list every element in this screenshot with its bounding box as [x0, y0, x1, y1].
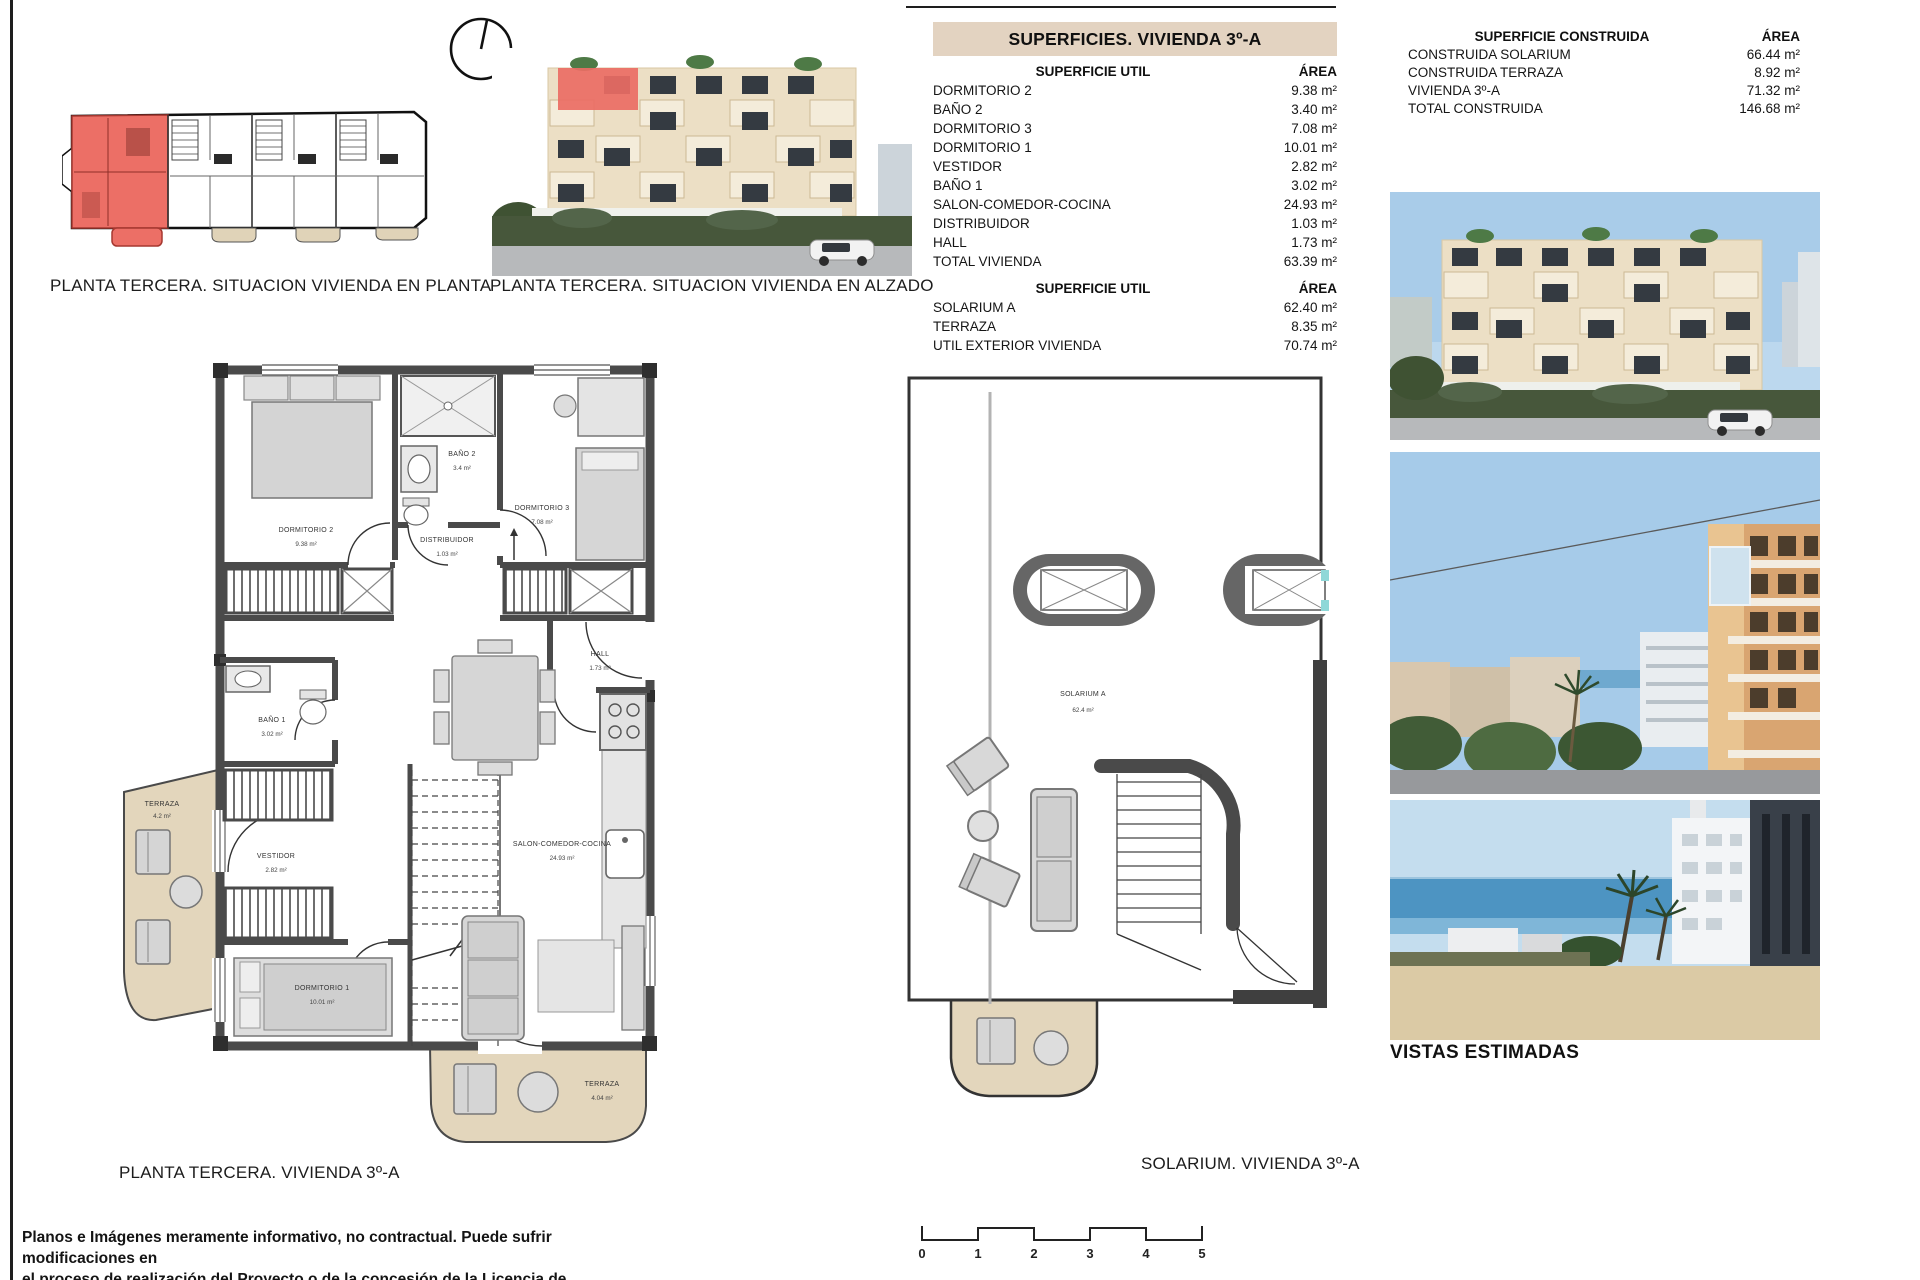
svg-text:BAÑO 1: BAÑO 1 — [258, 715, 285, 724]
table-row: TERRAZA 8.35 m² — [933, 317, 1337, 336]
table-row: CONSTRUIDA TERRAZA 8.92 m² — [1408, 64, 1800, 82]
svg-text:3.02 m²: 3.02 m² — [261, 731, 282, 738]
terrace-bottom: TERRAZA 4.04 m² — [430, 1046, 646, 1142]
table-row: BAÑO 1 3.02 m² — [933, 176, 1337, 195]
table-row: DORMITORIO 1 10.01 m² — [933, 138, 1337, 157]
thick-right-wall — [1313, 660, 1327, 1008]
situation-floor-plan — [62, 96, 442, 260]
highlighted-unit-elevation — [558, 68, 638, 110]
construida-panel: SUPERFICIE CONSTRUIDA ÁREA CONSTRUIDA SO… — [1408, 28, 1800, 118]
skylight-a — [1013, 554, 1155, 626]
svg-text:TERRAZA: TERRAZA — [145, 801, 180, 808]
solarium-plan: SOLARIUM A 62.4 m² — [893, 364, 1340, 1112]
table-row: TOTAL VIVIENDA 63.39 m² — [933, 252, 1337, 271]
table-row: CONSTRUIDA SOLARIUM 66.44 m² — [1408, 46, 1800, 64]
svg-text:3: 3 — [1086, 1246, 1093, 1261]
svg-text:1: 1 — [974, 1246, 981, 1261]
solarium-terrace — [951, 1000, 1097, 1096]
svg-text:DISTRIBUIDOR: DISTRIBUIDOR — [420, 537, 474, 544]
balcony-stubs — [212, 228, 418, 242]
beach-sand — [1390, 966, 1820, 1040]
solarium-walls — [909, 378, 1321, 1000]
page-top-border — [906, 6, 1336, 8]
caption-vistas: VISTAS ESTIMADAS — [1390, 1042, 1579, 1064]
table-row: DORMITORIO 3 7.08 m² — [933, 119, 1337, 138]
disclaimer: Planos e Imágenes meramente informativo,… — [22, 1228, 602, 1280]
svg-text:4: 4 — [1142, 1246, 1150, 1261]
table-row: SALON-COMEDOR-COCINA 24.93 m² — [933, 195, 1337, 214]
construida-header: SUPERFICIE CONSTRUIDA ÁREA — [1408, 28, 1800, 46]
svg-text:SALON-COMEDOR-COCINA: SALON-COMEDOR-COCINA — [513, 841, 611, 848]
svg-text:HALL: HALL — [591, 651, 610, 658]
table-row: BAÑO 2 3.40 m² — [933, 100, 1337, 119]
kitchen — [600, 694, 646, 948]
superficie-exterior-rows: SOLARIUM A 62.40 m² TERRAZA 8.35 m² UTIL… — [933, 298, 1337, 355]
construida-rows: CONSTRUIDA SOLARIUM 66.44 m² CONSTRUIDA … — [1408, 46, 1800, 118]
caption-situacion-alzado: PLANTA TERCERA. SITUACION VIVIENDA EN AL… — [490, 276, 934, 296]
svg-text:1.73 m²: 1.73 m² — [589, 665, 610, 672]
table-row: SOLARIUM A 62.40 m² — [933, 298, 1337, 317]
superficies-panel: SUPERFICIES. VIVIENDA 3º-A SUPERFICIE UT… — [933, 22, 1337, 355]
col-area-3: ÁREA — [1716, 28, 1800, 46]
situation-elevation — [492, 48, 912, 276]
plan-left-notch — [62, 148, 72, 192]
disclaimer-line-2: el proceso de realización del Proyecto o… — [22, 1270, 602, 1280]
svg-text:DORMITORIO 1: DORMITORIO 1 — [295, 985, 350, 992]
scale-bar: 0 1 2 3 4 5 — [912, 1218, 1222, 1270]
superficie-util-header: SUPERFICIE UTIL ÁREA — [933, 62, 1337, 81]
solarium-area: 62.4 m² — [1072, 707, 1093, 714]
photo-building-render — [1390, 192, 1820, 440]
floor-plan: TERRAZA 4.2 m² TERRAZA 4.04 m² — [110, 360, 670, 1160]
sofa — [462, 916, 524, 1040]
col-area: ÁREA — [1253, 62, 1337, 81]
table-row: DORMITORIO 2 9.38 m² — [933, 81, 1337, 100]
solarium-table — [968, 811, 998, 841]
table-row: UTIL EXTERIOR VIVIENDA 70.74 m² — [933, 336, 1337, 355]
svg-text:5: 5 — [1198, 1246, 1205, 1261]
table-row: TOTAL CONSTRUIDA 146.68 m² — [1408, 100, 1800, 118]
col-superficie-util: SUPERFICIE UTIL — [933, 62, 1253, 81]
svg-text:0: 0 — [918, 1246, 925, 1261]
col-area-2: ÁREA — [1253, 279, 1337, 298]
svg-text:BAÑO 2: BAÑO 2 — [448, 449, 475, 458]
svg-text:2: 2 — [1030, 1246, 1037, 1261]
table-row: VESTIDOR 2.82 m² — [933, 157, 1337, 176]
svg-text:10.01 m²: 10.01 m² — [310, 999, 335, 1006]
rug — [538, 940, 614, 1012]
bed-dormitorio1 — [234, 958, 392, 1036]
superficies-title: SUPERFICIES. VIVIENDA 3º-A — [933, 22, 1337, 56]
superficie-util-rows: DORMITORIO 2 9.38 m² BAÑO 2 3.40 m² DORM… — [933, 81, 1337, 271]
svg-text:1.03 m²: 1.03 m² — [436, 551, 457, 558]
solarium-sofa — [1031, 789, 1077, 931]
caption-situacion-planta: PLANTA TERCERA. SITUACION VIVIENDA EN PL… — [50, 276, 491, 296]
bed-dormitorio2 — [244, 376, 380, 498]
col-superficie-construida: SUPERFICIE CONSTRUIDA — [1408, 28, 1716, 46]
road — [1390, 770, 1820, 794]
tv-bench — [622, 926, 644, 1030]
white-building — [1672, 800, 1750, 964]
dark-building — [1750, 800, 1820, 972]
skylight-b — [1223, 554, 1337, 626]
caption-solarium: SOLARIUM. VIVIENDA 3º-A — [1141, 1154, 1360, 1174]
terrace-left: TERRAZA 4.2 m² — [124, 770, 218, 1020]
table-row: HALL 1.73 m² — [933, 233, 1337, 252]
svg-text:24.93 m²: 24.93 m² — [550, 855, 575, 862]
scale-ticks: 0 1 2 3 4 5 — [918, 1246, 1205, 1261]
highlighted-unit — [72, 115, 168, 246]
plan-sheet: PLANTA TERCERA. SITUACION VIVIENDA EN PL… — [0, 0, 1920, 1280]
table-row: DISTRIBUIDOR 1.03 m² — [933, 214, 1337, 233]
superficie-exterior-header: SUPERFICIE UTIL ÁREA — [933, 279, 1337, 298]
orange-building — [1708, 524, 1820, 794]
svg-text:4.2 m²: 4.2 m² — [153, 813, 171, 820]
photo-street-view — [1390, 452, 1820, 794]
solarium-label: SOLARIUM A — [1060, 691, 1106, 698]
svg-text:DORMITORIO 3: DORMITORIO 3 — [515, 505, 570, 512]
dining-set — [434, 640, 555, 775]
thick-bottom-wall — [1233, 990, 1327, 1004]
disclaimer-line-1: Planos e Imágenes meramente informativo,… — [22, 1228, 602, 1270]
svg-text:3.4 m²: 3.4 m² — [453, 465, 471, 472]
photo-beach-view — [1390, 800, 1820, 1040]
svg-text:4.04 m²: 4.04 m² — [591, 1095, 612, 1102]
svg-text:VESTIDOR: VESTIDOR — [257, 853, 295, 860]
col-superficie-util-2: SUPERFICIE UTIL — [933, 279, 1253, 298]
svg-text:7.08 m²: 7.08 m² — [531, 519, 552, 526]
svg-text:9.38 m²: 9.38 m² — [295, 541, 316, 548]
caption-floor-plan: PLANTA TERCERA. VIVIENDA 3º-A — [119, 1163, 400, 1183]
table-row: VIVIENDA 3º-A 71.32 m² — [1408, 82, 1800, 100]
page-left-border — [10, 0, 13, 1280]
svg-text:DORMITORIO 2: DORMITORIO 2 — [279, 527, 334, 534]
svg-text:2.82 m²: 2.82 m² — [265, 867, 286, 874]
svg-text:TERRAZA: TERRAZA — [585, 1081, 620, 1088]
